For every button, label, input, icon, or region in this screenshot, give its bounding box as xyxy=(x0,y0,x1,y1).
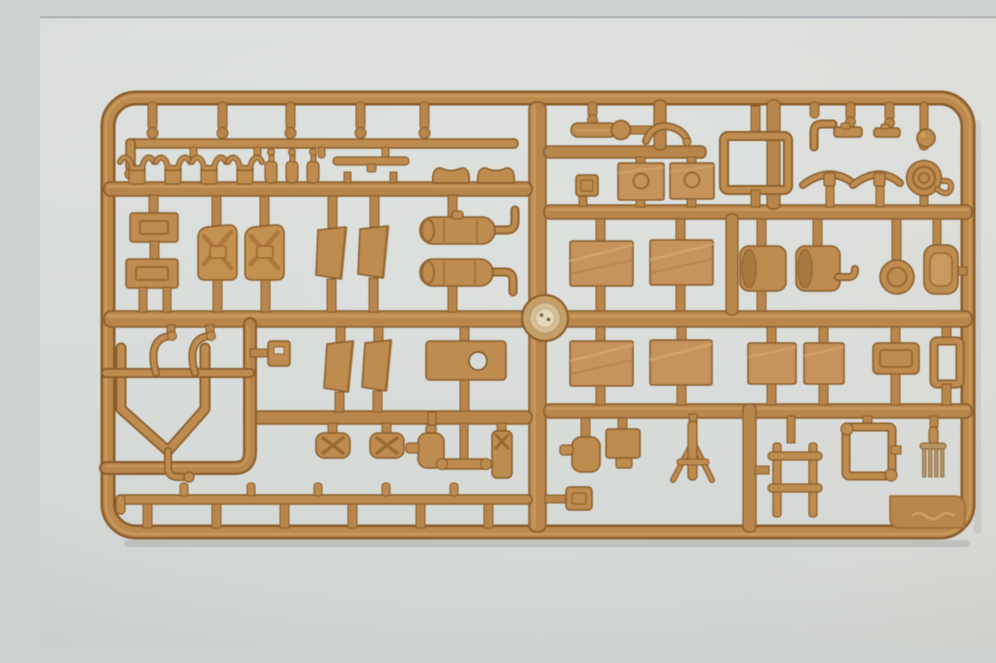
part-xplate-1 xyxy=(316,423,350,458)
part-cable-coil xyxy=(907,161,952,207)
part-square-frame xyxy=(841,416,901,481)
part-tarp-crate-1 xyxy=(570,219,633,311)
part-box-small xyxy=(606,418,640,468)
part-drum-2 xyxy=(796,219,855,291)
part-crate-6 xyxy=(804,327,844,405)
part-elbow-pipe xyxy=(814,124,833,147)
injection-gate-disc xyxy=(522,295,568,341)
part-jerrycan-2 xyxy=(245,196,284,312)
part-tab-plate xyxy=(545,487,592,510)
part-pin-set xyxy=(265,149,319,184)
part-canteen-small xyxy=(560,418,600,472)
part-stand-x xyxy=(673,414,712,480)
part-hook-frame xyxy=(106,325,250,482)
part-buckle-ring xyxy=(934,327,960,405)
part-bottom-rod xyxy=(116,483,532,528)
part-cylinder-pin xyxy=(571,121,656,140)
part-roof-strip xyxy=(333,157,409,183)
part-muffler-2 xyxy=(420,259,513,312)
part-tarp-crate-4 xyxy=(650,327,712,405)
gate-studs-top-left xyxy=(147,102,430,139)
part-disc xyxy=(880,219,914,294)
part-xplate-2 xyxy=(370,423,404,458)
part-plate-with-hole xyxy=(426,327,506,411)
part-lid xyxy=(873,327,919,405)
rail-left-lower-runner xyxy=(250,411,532,424)
photo-model-kit-sprue xyxy=(40,16,996,647)
part-crate-embossed-1 xyxy=(618,157,664,207)
rail-right-lower xyxy=(544,404,972,418)
part-crate-embossed-2 xyxy=(670,157,714,207)
part-flap-3 xyxy=(324,327,353,412)
rail-right-short xyxy=(544,146,706,158)
rail-vertical-704 xyxy=(743,404,756,532)
part-flap-1 xyxy=(316,196,346,312)
part-clamp-set-small xyxy=(120,157,262,184)
part-drum-1 xyxy=(740,219,786,311)
part-stand-frame xyxy=(755,416,822,517)
part-flap-2 xyxy=(358,196,388,312)
part-tarp-crate-3 xyxy=(570,327,633,405)
part-curved-hook xyxy=(646,126,691,146)
part-flat-fitting-1 xyxy=(834,123,862,137)
part-xtool xyxy=(492,423,512,478)
part-ball-small xyxy=(917,129,935,147)
part-pitchfork xyxy=(920,416,946,477)
part-tag-small xyxy=(576,175,598,206)
part-flat-fitting-2 xyxy=(874,124,900,137)
rail-vertical-688 xyxy=(726,214,738,315)
part-muffler-1 xyxy=(420,195,515,244)
part-toolbox-stack xyxy=(126,195,178,312)
part-crate-5 xyxy=(748,327,796,405)
molded-corner-tab xyxy=(890,496,965,528)
part-flap-4 xyxy=(362,327,391,412)
part-tarp-crate-2 xyxy=(650,219,713,311)
part-clamp-set-wide xyxy=(433,168,515,183)
part-jerrycan-1 xyxy=(198,196,237,312)
sprue-photo-svg xyxy=(40,16,996,647)
part-pickaxe-set xyxy=(803,173,900,207)
